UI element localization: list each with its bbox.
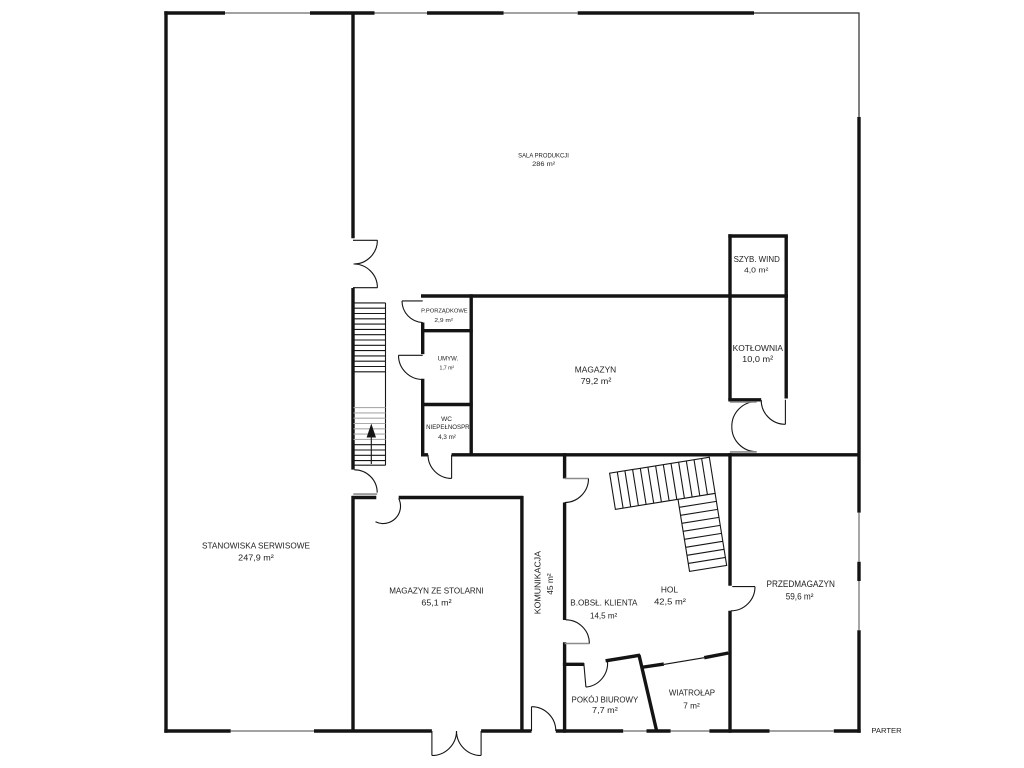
svg-text:MAGAZYN ZE STOLARNI: MAGAZYN ZE STOLARNI: [389, 587, 484, 596]
svg-text:PARTER: PARTER: [871, 726, 902, 735]
svg-text:B.OBSŁ. KLIENTA: B.OBSŁ. KLIENTA: [570, 599, 638, 608]
svg-text:KOTŁOWNIA: KOTŁOWNIA: [733, 343, 784, 353]
svg-text:79,2 m²: 79,2 m²: [581, 376, 612, 386]
svg-text:7,7 m²: 7,7 m²: [592, 705, 618, 715]
svg-text:2,9 m²: 2,9 m²: [434, 318, 453, 324]
svg-text:KOMUNIKACJA: KOMUNIKACJA: [532, 551, 542, 614]
svg-text:POKÓJ BIUROWY: POKÓJ BIUROWY: [572, 696, 639, 705]
svg-text:4,0 m²: 4,0 m²: [744, 266, 769, 275]
svg-text:MAGAZYN: MAGAZYN: [575, 364, 616, 374]
svg-text:SALA PRODUKCJI: SALA PRODUKCJI: [518, 152, 569, 159]
svg-text:7 m²: 7 m²: [683, 702, 700, 711]
svg-text:STANOWISKA SERWISOWE: STANOWISKA SERWISOWE: [202, 540, 310, 550]
svg-text:59,6 m²: 59,6 m²: [786, 592, 814, 602]
svg-text:4,3 m²: 4,3 m²: [438, 435, 456, 441]
svg-text:42,5 m²: 42,5 m²: [654, 597, 686, 607]
svg-text:PRZEDMAGAZYN: PRZEDMAGAZYN: [767, 579, 835, 589]
svg-text:P.PORZĄDKOWE: P.PORZĄDKOWE: [421, 309, 468, 315]
svg-text:10,0 m²: 10,0 m²: [742, 354, 773, 364]
svg-text:WIATROŁAP: WIATROŁAP: [669, 688, 715, 697]
svg-text:WC: WC: [441, 416, 452, 423]
svg-text:SZYB. WIND: SZYB. WIND: [734, 255, 781, 264]
svg-text:286 m²: 286 m²: [532, 161, 556, 168]
svg-text:UMYW.: UMYW.: [438, 357, 459, 363]
svg-text:247,9 m²: 247,9 m²: [238, 553, 274, 563]
svg-text:65,1 m²: 65,1 m²: [421, 597, 451, 607]
svg-text:NIEPEŁNOSPR.: NIEPEŁNOSPR.: [426, 424, 472, 431]
svg-text:45 m²: 45 m²: [545, 573, 555, 595]
svg-text:14,5 m²: 14,5 m²: [590, 612, 618, 621]
svg-text:1,7 m²: 1,7 m²: [440, 365, 455, 371]
svg-text:HOL: HOL: [661, 585, 679, 595]
